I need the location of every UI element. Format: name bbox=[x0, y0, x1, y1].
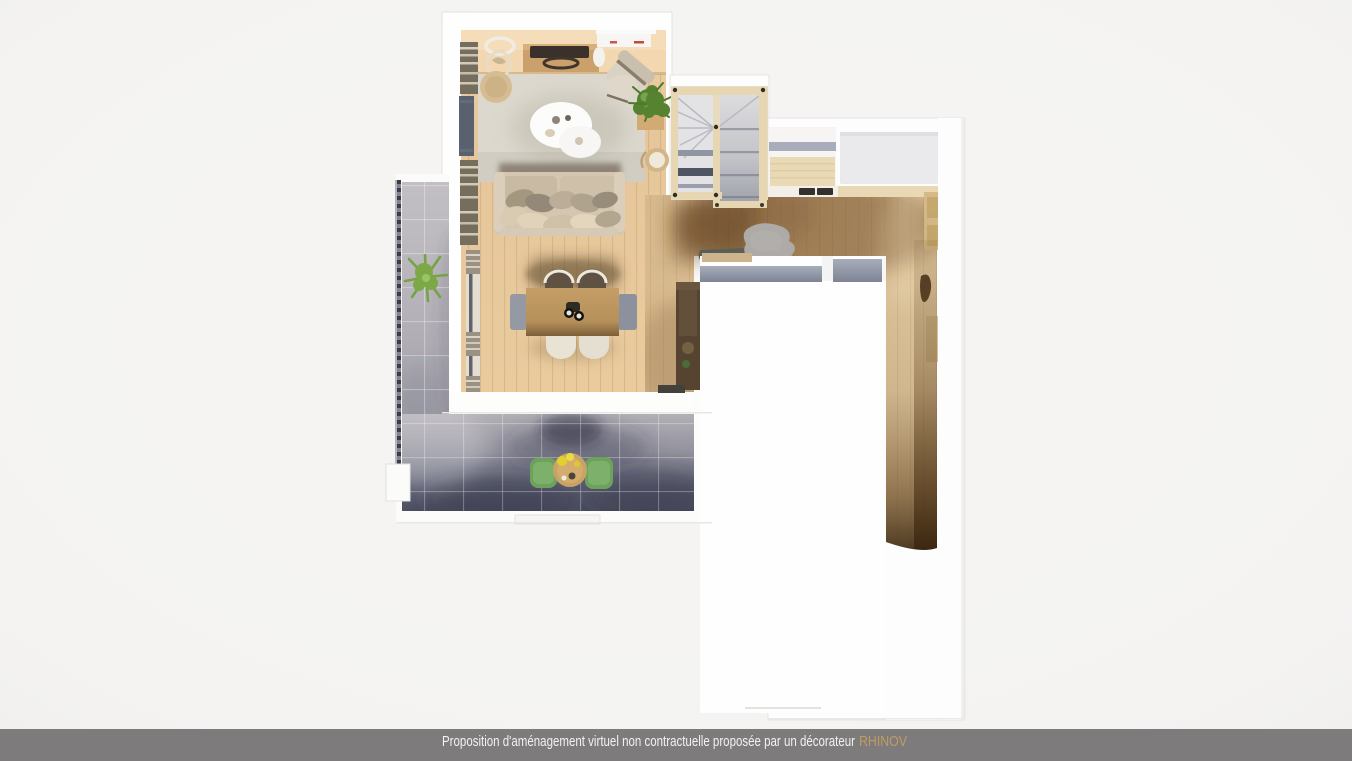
svg-text:Proposition d'aménagement virt: Proposition d'aménagement virtuel non co… bbox=[442, 733, 855, 750]
svg-text:RHINOV: RHINOV bbox=[859, 733, 907, 750]
